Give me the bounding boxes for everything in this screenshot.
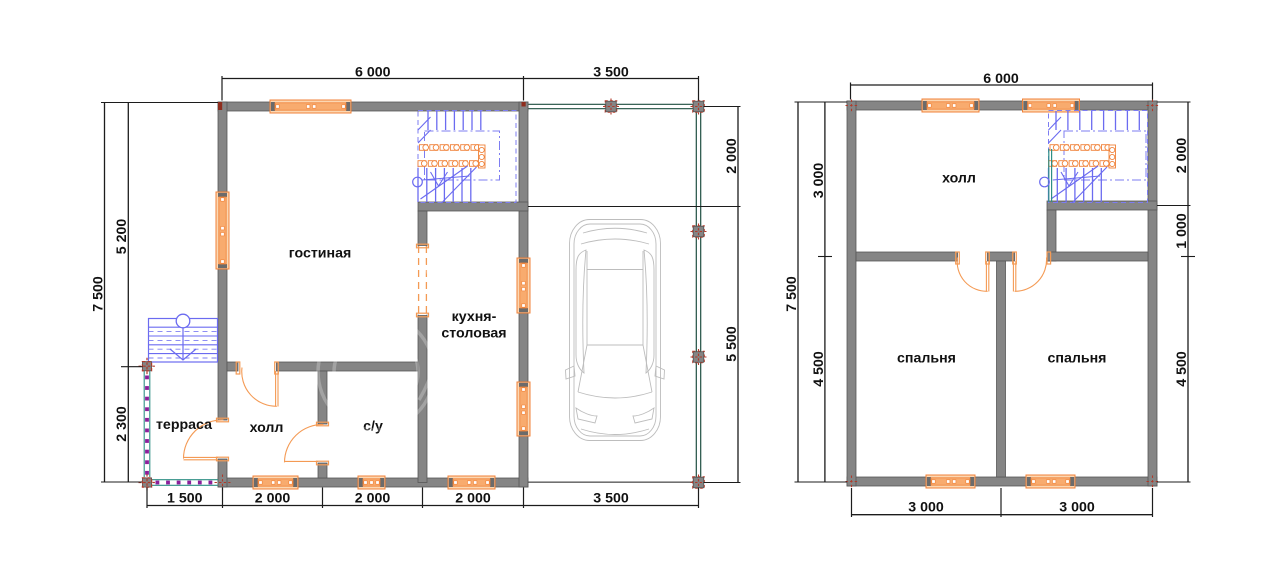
svg-text:столовая: столовая	[441, 326, 506, 342]
svg-text:2 000: 2 000	[1174, 138, 1190, 174]
svg-text:3 000: 3 000	[811, 163, 827, 199]
svg-text:1 000: 1 000	[1174, 213, 1190, 249]
svg-text:2 000: 2 000	[255, 491, 291, 507]
svg-text:6 000: 6 000	[355, 65, 391, 81]
svg-text:4 500: 4 500	[1174, 351, 1190, 387]
svg-text:спальня: спальня	[1048, 351, 1107, 367]
svg-text:5 500: 5 500	[724, 326, 740, 362]
svg-text:2 000: 2 000	[355, 491, 391, 507]
svg-text:6 000: 6 000	[983, 71, 1019, 87]
svg-text:с/у: с/у	[363, 419, 383, 435]
svg-text:спальня: спальня	[897, 351, 956, 367]
svg-text:кухня-: кухня-	[452, 309, 497, 325]
svg-text:гостиная: гостиная	[289, 246, 352, 262]
svg-text:холл: холл	[942, 171, 976, 187]
svg-text:4 500: 4 500	[811, 351, 827, 387]
svg-text:2 000: 2 000	[455, 491, 491, 507]
svg-text:3 500: 3 500	[593, 65, 629, 81]
svg-text:5 200: 5 200	[114, 219, 130, 255]
svg-text:2 000: 2 000	[724, 138, 740, 174]
svg-text:1 500: 1 500	[167, 491, 203, 507]
svg-text:терраса: терраса	[156, 417, 212, 433]
svg-text:7 500: 7 500	[90, 276, 106, 312]
svg-text:2 300: 2 300	[114, 406, 130, 442]
svg-text:3 500: 3 500	[593, 491, 629, 507]
svg-text:3 000: 3 000	[1059, 500, 1095, 516]
svg-text:7 500: 7 500	[784, 276, 800, 312]
svg-text:3 000: 3 000	[908, 500, 944, 516]
svg-text:холл: холл	[250, 420, 284, 436]
